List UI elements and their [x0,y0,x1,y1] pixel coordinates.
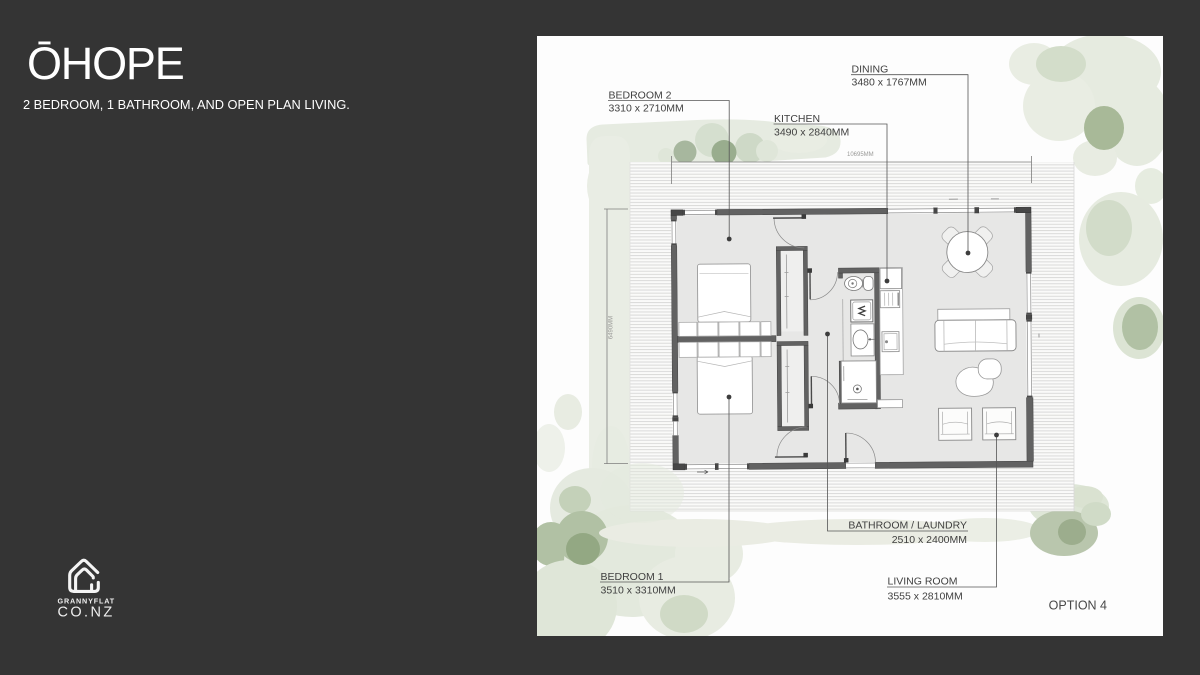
svg-text:3510 x 3310MM: 3510 x 3310MM [601,585,676,597]
svg-text:3310 x 2710MM: 3310 x 2710MM [609,103,684,115]
svg-text:OPTION 4: OPTION 4 [1049,599,1107,613]
svg-text:3555 x 2810MM: 3555 x 2810MM [888,591,963,603]
svg-text:CO.NZ: CO.NZ [58,605,115,621]
svg-text:KITCHEN: KITCHEN [774,113,820,125]
svg-text:2510 x 2400MM: 2510 x 2400MM [892,534,967,546]
svg-text:3490 x 2840MM: 3490 x 2840MM [774,127,849,139]
svg-text:BEDROOM 2: BEDROOM 2 [609,90,672,102]
svg-text:3480 x 1767MM: 3480 x 1767MM [852,77,927,89]
svg-text:10695MM: 10695MM [847,152,874,158]
svg-text:6490MM: 6490MM [609,316,615,339]
svg-text:DINING: DINING [852,64,889,76]
svg-text:BATHROOM / LAUNDRY: BATHROOM / LAUNDRY [848,520,967,532]
svg-text:LIVING ROOM: LIVING ROOM [888,576,958,588]
svg-text:BEDROOM 1: BEDROOM 1 [601,571,664,583]
